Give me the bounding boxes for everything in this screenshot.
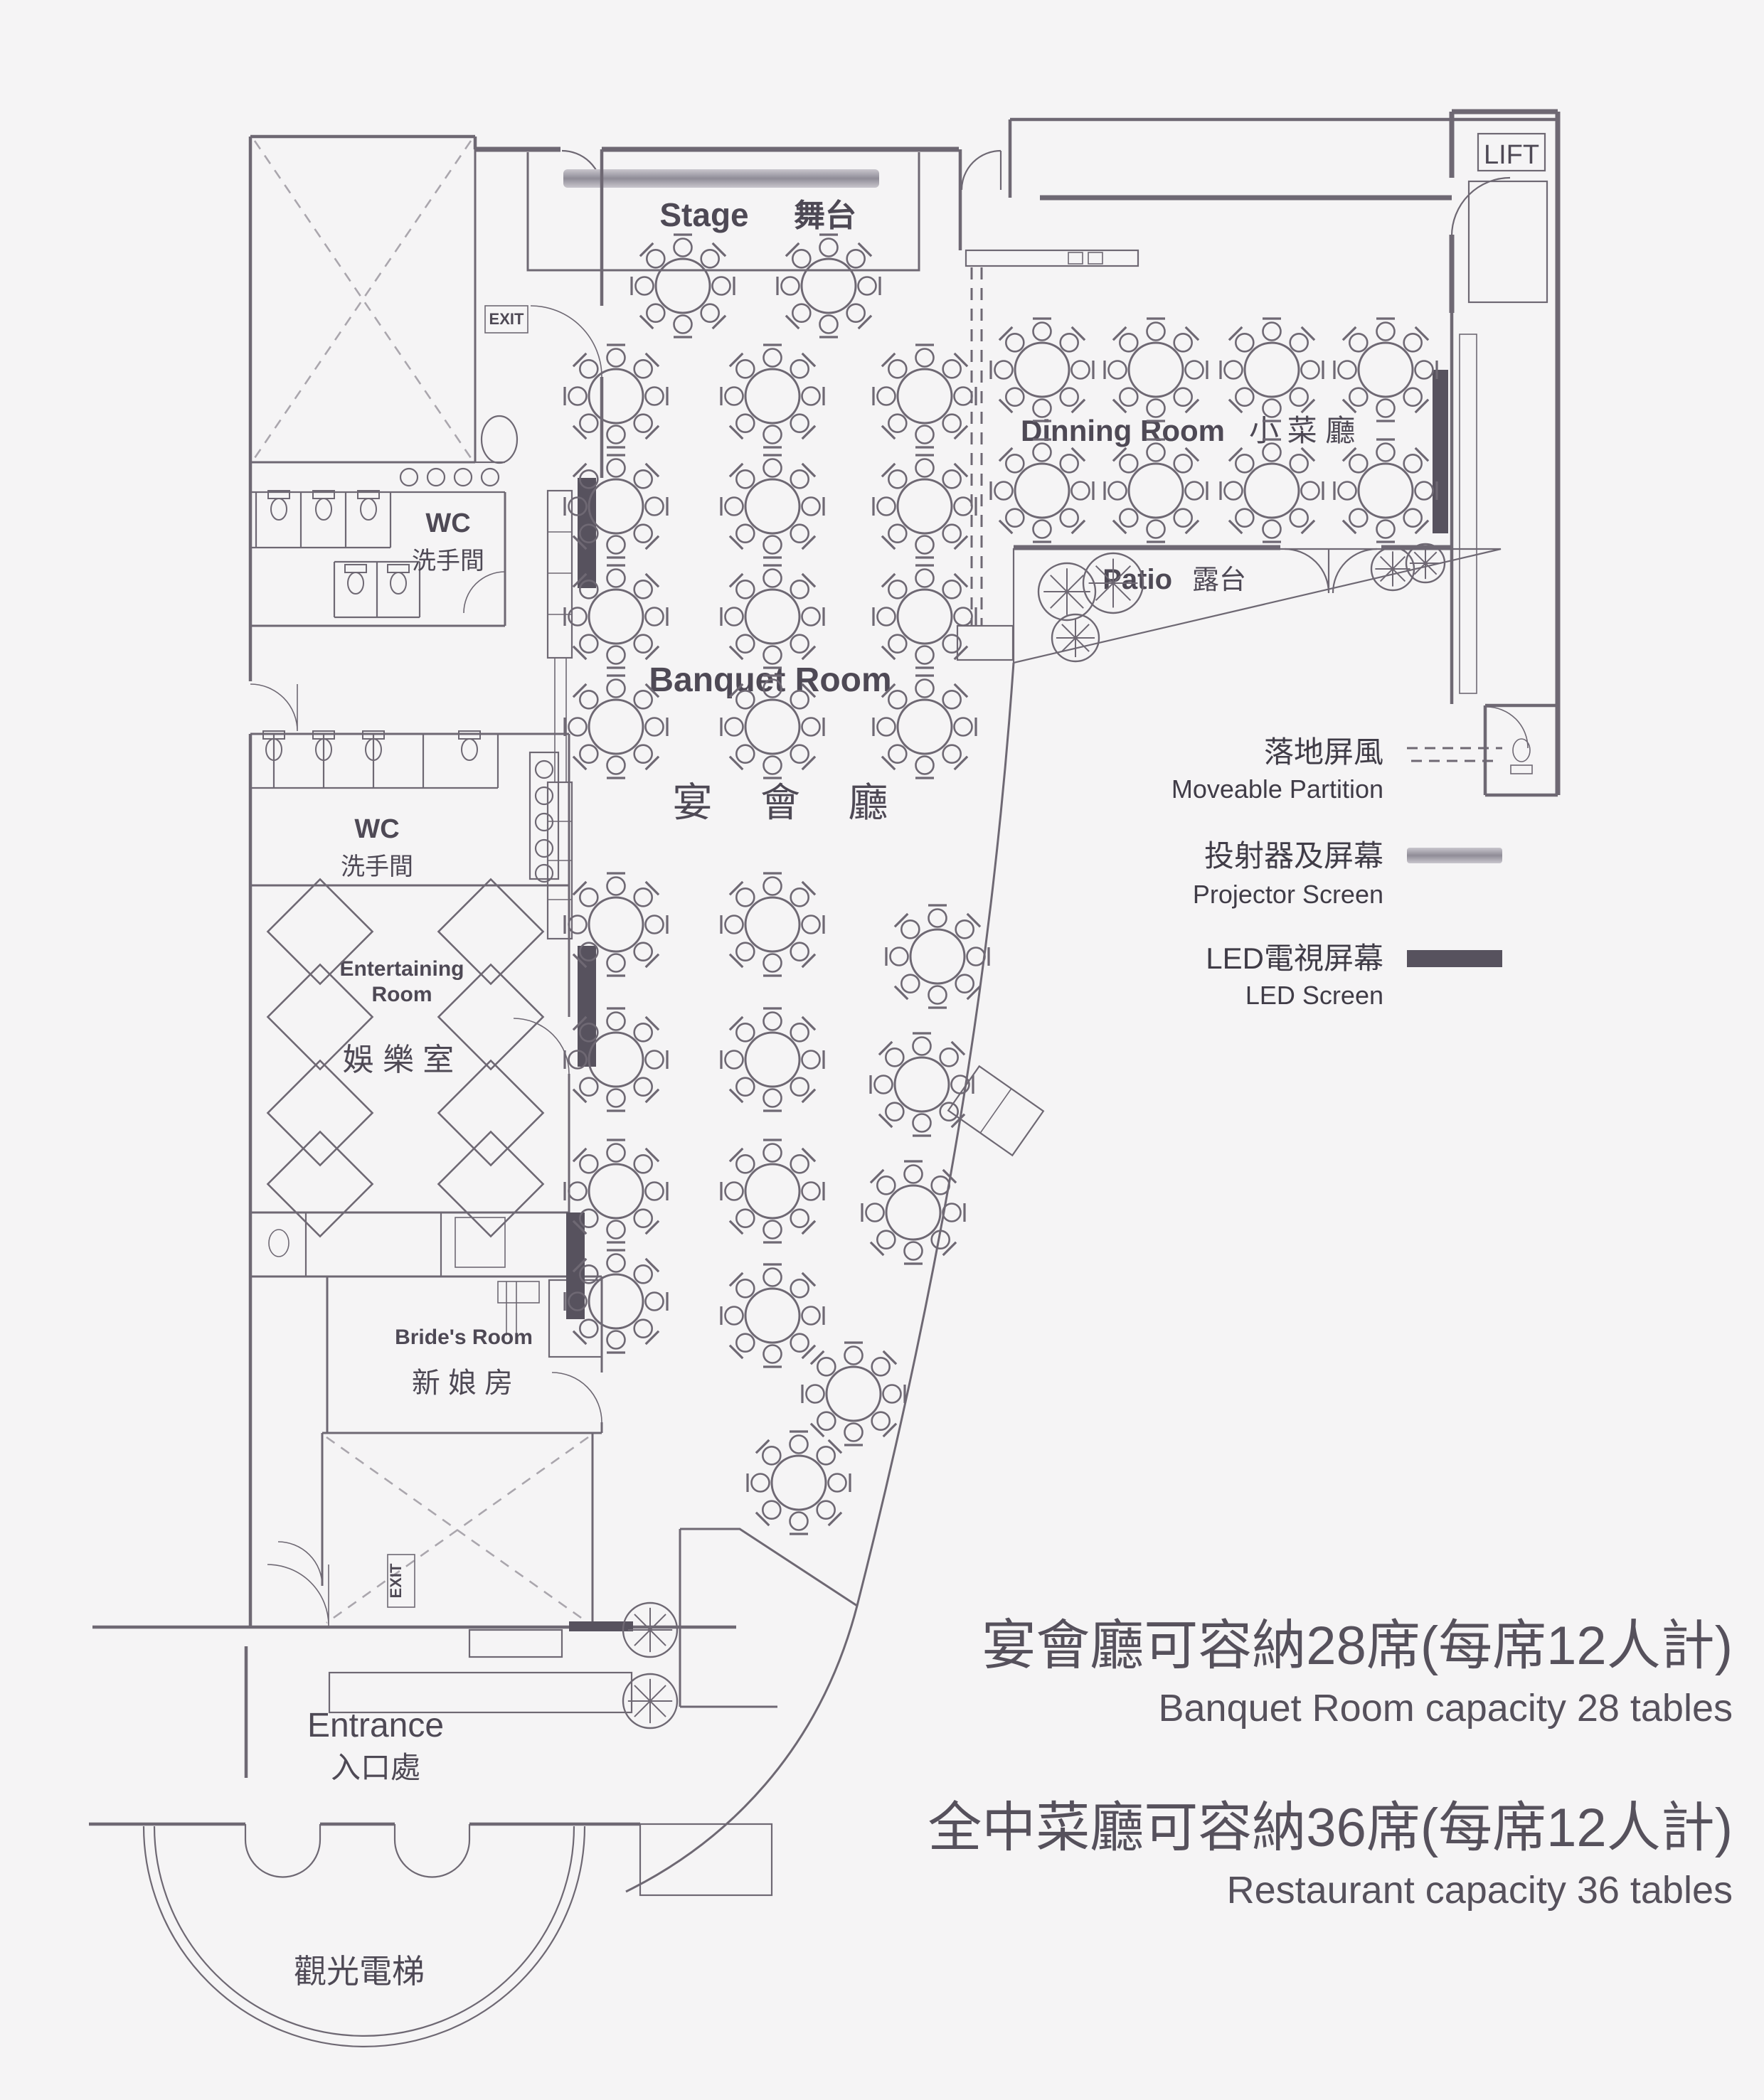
hatched-block	[640, 1824, 772, 1895]
entrance-label-en: Entrance	[307, 1707, 444, 1744]
dining-table	[1334, 439, 1437, 542]
left-outer-wall	[250, 137, 475, 1627]
led-screen-2	[578, 946, 596, 1067]
banquet-table	[802, 1343, 905, 1445]
stage-label-en: Stage	[659, 196, 748, 233]
banquet-table	[565, 873, 667, 976]
legend-partition-zh: 落地屏風	[1264, 735, 1383, 769]
brides-label-zh: 新 娘 房	[412, 1368, 513, 1399]
entertaining-table	[438, 1131, 543, 1236]
entertaining-table	[267, 1131, 372, 1236]
legend-projector-symbol	[1407, 848, 1502, 863]
banquet-table	[721, 873, 824, 976]
toilet-icon	[1513, 739, 1530, 762]
counter-box	[1088, 252, 1102, 264]
dining-label-en: Dinning Room	[1021, 414, 1225, 447]
capacity-banquet-zh: 宴會廳可容納28席(每席12人計)	[982, 1616, 1733, 1676]
legend-projector-en: Projector Screen	[1193, 880, 1383, 909]
lobby-door-arc	[1452, 178, 1510, 236]
room-a-walls	[250, 149, 475, 462]
legend-projector-zh: 投射器及屏幕	[1204, 839, 1383, 873]
entrance-tree	[623, 1674, 677, 1728]
sink-icon	[536, 787, 553, 804]
lift-label: LIFT	[1484, 140, 1539, 170]
entertaining-door-arc	[514, 1018, 569, 1074]
exit2-label: EXIT	[387, 1563, 405, 1598]
banquet-table	[873, 565, 976, 668]
exit-corridor-door	[531, 306, 602, 377]
dining-table	[991, 439, 1093, 542]
bathstrip-dividers	[306, 1212, 441, 1276]
wc2-stall-dividers	[250, 734, 498, 788]
lift-lobby-walls	[1452, 112, 1558, 795]
revolving-door-pockets	[245, 1824, 469, 1877]
banquet-table	[721, 345, 824, 447]
toilet-tank	[1511, 765, 1532, 774]
patio-tree	[1052, 614, 1099, 661]
room-a-x	[255, 141, 471, 458]
toilet-icon	[269, 1230, 289, 1257]
counter-box	[1068, 252, 1083, 264]
banquet-table	[565, 565, 667, 668]
capacity-restaurant-zh: 全中菜廳可容納36席(每席12人計)	[928, 1798, 1733, 1858]
wc1-door-arc	[464, 572, 505, 613]
capacity-banquet-en: Banquet Room capacity 28 tables	[1159, 1687, 1733, 1729]
wc1-label-en: WC	[425, 508, 470, 538]
wall-panel-1	[548, 491, 572, 658]
entrance-label-zh: 入口處	[331, 1751, 420, 1784]
sink-icon	[427, 469, 445, 486]
banquet-table	[721, 1264, 824, 1367]
dining-table	[1334, 319, 1437, 421]
dining-table	[1221, 319, 1323, 421]
dining-table	[1221, 439, 1323, 542]
entertaining-table	[438, 1060, 543, 1165]
legend: 落地屏風 Moveable Partition 投射器及屏幕 Projector…	[1171, 735, 1502, 1010]
banquet-table	[873, 455, 976, 558]
partition-end-post	[957, 626, 1013, 660]
dining-table	[991, 319, 1093, 421]
capacity-restaurant-en: Restaurant capacity 36 tables	[1227, 1869, 1733, 1912]
toilet-icon	[345, 565, 366, 594]
toilet-icon	[358, 491, 379, 520]
entrance-door-arc	[267, 1565, 329, 1626]
dining-label-zh: 小 菜 廳	[1249, 414, 1355, 447]
room-b-door-arc	[278, 1542, 322, 1586]
sink-icon	[536, 761, 553, 778]
lobby-wc-walls	[1485, 705, 1558, 795]
stage-projector-screen	[563, 169, 879, 188]
brides-label-en: Bride's Room	[395, 1326, 533, 1349]
patio-tree	[1406, 544, 1445, 582]
banquet-table	[873, 676, 976, 778]
corridor-oval-basin	[482, 416, 517, 463]
corridor-door	[250, 684, 297, 731]
wc1-label-zh: 洗手間	[412, 548, 484, 575]
exit1-label: EXIT	[489, 310, 524, 328]
banquet-table	[721, 565, 824, 668]
banquet-table	[886, 905, 989, 1008]
banquet-table	[721, 1008, 824, 1111]
banquet-table	[565, 1140, 667, 1242]
banquet-table	[871, 1033, 973, 1136]
panel1-dividers	[548, 532, 572, 614]
patio-label-zh: 露台	[1192, 565, 1246, 595]
moveable-partition	[972, 267, 982, 626]
legend-led-zh: LED電視屏幕	[1206, 942, 1383, 975]
entertaining-label-en2: Room	[372, 983, 432, 1006]
legend-led-symbol	[1407, 950, 1502, 967]
banquet-table	[862, 1161, 965, 1264]
banquet-label-zh: 宴 會 廳	[672, 780, 906, 825]
floor-plan: Stage 舞台 Banquet Room 宴 會 廳 Dinning Room…	[0, 0, 1764, 2100]
room-b-cabinet	[469, 1630, 562, 1657]
room-b-x	[326, 1437, 588, 1623]
wc2-label-zh: 洗手間	[341, 853, 413, 880]
corridor-door-arc	[962, 151, 1001, 190]
banquet-table	[565, 676, 667, 778]
stage-label-zh: 舞台	[794, 198, 856, 233]
sink-icon	[536, 840, 553, 857]
service-counter	[966, 250, 1138, 266]
patio-tree	[1038, 563, 1095, 620]
entrance-tree	[623, 1603, 677, 1657]
brides-walls	[327, 1276, 602, 1433]
led-screen-dining	[1433, 370, 1448, 533]
sink-icon	[482, 469, 499, 486]
sink-icon	[400, 469, 418, 486]
dining-buffet-counter	[1460, 334, 1477, 693]
lobby-wc-door	[1487, 707, 1528, 748]
toilet-icon	[459, 731, 480, 760]
wc1-sink-strip	[250, 462, 505, 492]
banquet-table	[721, 1140, 824, 1242]
brides-table	[498, 1281, 539, 1303]
sink-icon	[455, 469, 472, 486]
patio-tree	[1083, 553, 1143, 613]
legend-partition-en: Moveable Partition	[1171, 774, 1383, 804]
toilet-icon	[388, 565, 409, 594]
toilet-icon	[313, 491, 334, 520]
scenic-lift-label: 觀光電梯	[294, 1953, 425, 1990]
wc1-substalls	[334, 562, 420, 617]
banquet-table	[565, 345, 667, 447]
banquet-table	[873, 345, 976, 447]
brides-door-arc	[552, 1373, 602, 1422]
dining-table	[1105, 439, 1207, 542]
outer-wall-top-right	[1010, 119, 1558, 198]
scenic-lift-arc	[144, 1826, 585, 2047]
legend-led-en: LED Screen	[1245, 981, 1383, 1010]
banquet-table	[777, 235, 880, 337]
sink-icon	[536, 814, 553, 831]
entertaining-label-en1: Entertaining	[339, 957, 464, 981]
toilet-icon	[268, 491, 289, 520]
banquet-table	[721, 455, 824, 558]
banquet-table	[632, 235, 734, 337]
lift-car	[1469, 181, 1547, 302]
banquet-table	[748, 1432, 850, 1534]
wc2-label-en: WC	[354, 814, 399, 844]
entertaining-label-zh: 娛 樂 室	[343, 1043, 454, 1077]
capacity-note: 宴會廳可容納28席(每席12人計) Banquet Room capacity …	[928, 1616, 1733, 1912]
dining-table	[1105, 319, 1207, 421]
patio-door-arcs	[1285, 549, 1377, 593]
